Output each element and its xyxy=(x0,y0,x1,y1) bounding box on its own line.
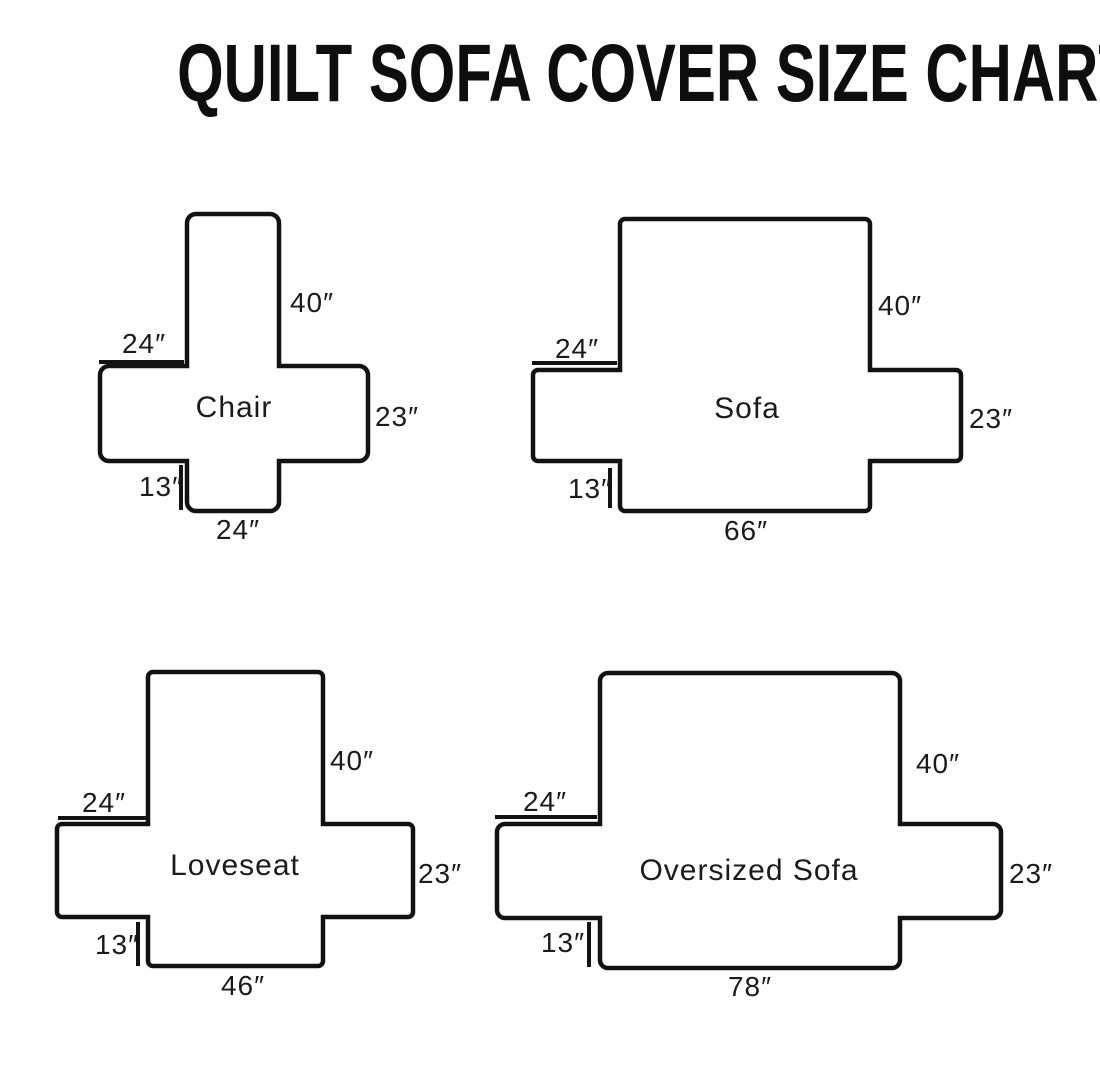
chair-front-width-label: 24″ xyxy=(216,514,260,546)
sofa-arm-height-label: 23″ xyxy=(969,403,1013,435)
loveseat-name-label: Loveseat xyxy=(170,849,300,883)
sofa-skirt-height-label: 13″ xyxy=(568,473,612,505)
oversized-sofa-arm-width-label: 24″ xyxy=(523,786,567,818)
sofa-name-label: Sofa xyxy=(714,392,780,426)
loveseat-arm-width-label: 24″ xyxy=(82,787,126,819)
loveseat-front-width-label: 46″ xyxy=(221,970,265,1002)
oversized-sofa-arm-height-label: 23″ xyxy=(1009,858,1053,890)
sofa-arm-width-label: 24″ xyxy=(555,333,599,365)
loveseat-back-height-label: 40″ xyxy=(330,745,374,777)
oversized-sofa-name-label: Oversized Sofa xyxy=(639,854,858,888)
oversized-sofa-front-width-label: 78″ xyxy=(728,971,772,1003)
chair-arm-height-label: 23″ xyxy=(375,401,419,433)
chair-arm-width-label: 24″ xyxy=(122,328,166,360)
loveseat-arm-height-label: 23″ xyxy=(418,858,462,890)
size-chart: QUILT SOFA COVER SIZE CHART 40″ 24″ Chai… xyxy=(0,0,1100,1092)
chair-name-label: Chair xyxy=(196,391,273,425)
oversized-sofa-outline xyxy=(497,673,1001,968)
oversized-sofa-back-height-label: 40″ xyxy=(916,748,960,780)
sofa-back-height-label: 40″ xyxy=(878,290,922,322)
sofa-front-width-label: 66″ xyxy=(724,515,768,547)
oversized-sofa-skirt-height-label: 13″ xyxy=(541,927,585,959)
chair-back-height-label: 40″ xyxy=(290,287,334,319)
loveseat-skirt-height-label: 13″ xyxy=(95,929,139,961)
chair-skirt-height-label: 13″ xyxy=(139,471,183,503)
